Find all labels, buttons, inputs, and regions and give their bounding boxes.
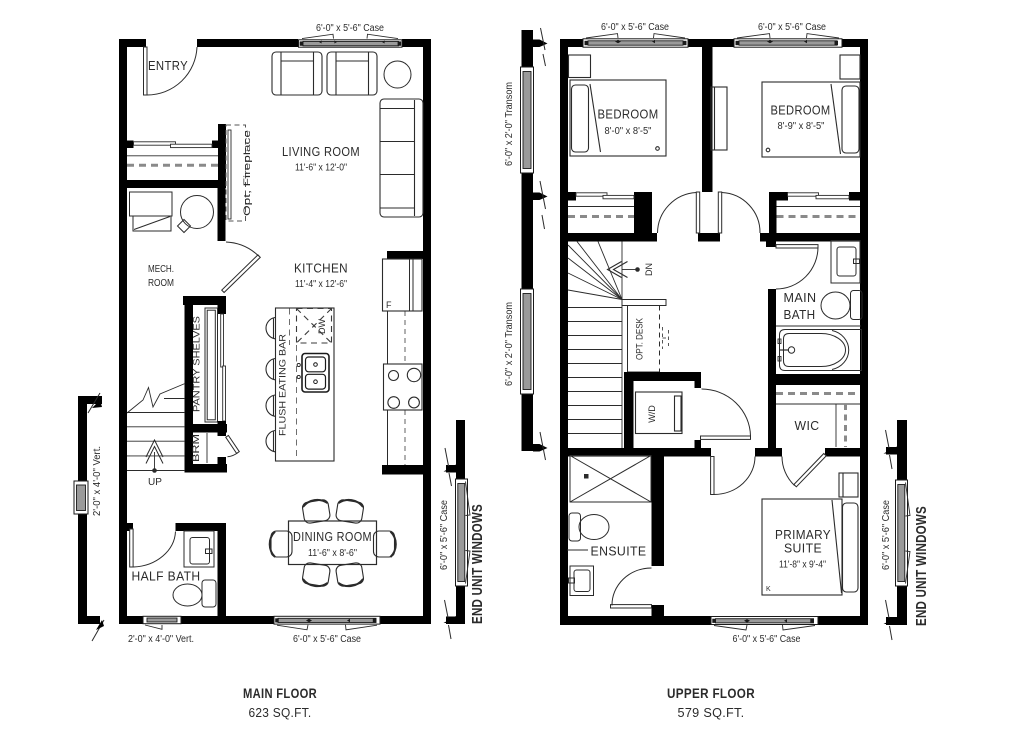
svg-text:6'-0" x 2'-0" Transom: 6'-0" x 2'-0" Transom bbox=[504, 302, 515, 386]
svg-text:ENTRY: ENTRY bbox=[148, 59, 188, 73]
svg-text:END UNIT WINDOWS: END UNIT WINDOWS bbox=[913, 506, 930, 626]
svg-text:8'-9" x 8'-5": 8'-9" x 8'-5" bbox=[778, 121, 825, 132]
svg-text:6'-0" x 5'-6" Case: 6'-0" x 5'-6" Case bbox=[758, 22, 826, 33]
svg-text:BEDROOM: BEDROOM bbox=[598, 108, 659, 122]
svg-text:END UNIT WINDOWS: END UNIT WINDOWS bbox=[469, 504, 486, 624]
svg-text:LIVING ROOM: LIVING ROOM bbox=[282, 145, 360, 159]
svg-text:K: K bbox=[766, 586, 771, 593]
svg-text:DINING ROOM: DINING ROOM bbox=[293, 530, 372, 544]
svg-text:6'-0" x 5'-6" Case: 6'-0" x 5'-6" Case bbox=[316, 23, 384, 34]
svg-text:F: F bbox=[386, 300, 392, 310]
svg-text:DW: DW bbox=[317, 319, 327, 334]
svg-text:623 SQ.FT.: 623 SQ.FT. bbox=[249, 705, 312, 720]
svg-text:MAIN: MAIN bbox=[784, 291, 817, 305]
svg-text:WIC: WIC bbox=[795, 419, 820, 433]
svg-text:SUITE: SUITE bbox=[784, 542, 822, 556]
svg-text:6'-0" x 5'-6" Case: 6'-0" x 5'-6" Case bbox=[881, 500, 892, 570]
svg-text:11'-4" x 12'-6": 11'-4" x 12'-6" bbox=[295, 279, 347, 290]
svg-text:BATH: BATH bbox=[784, 308, 816, 322]
svg-text:UP: UP bbox=[148, 477, 162, 488]
svg-text:ROOM: ROOM bbox=[148, 278, 174, 289]
svg-text:2'-0" x 4'-0" Vert.: 2'-0" x 4'-0" Vert. bbox=[92, 446, 103, 516]
svg-text:6'-0" x 5'-6" Case: 6'-0" x 5'-6" Case bbox=[601, 22, 669, 33]
svg-text:BEDROOM: BEDROOM bbox=[771, 104, 831, 118]
svg-text:6'-0" x 2'-0" Transom: 6'-0" x 2'-0" Transom bbox=[504, 82, 515, 166]
svg-text:2'-0" x 4'-0" Vert.: 2'-0" x 4'-0" Vert. bbox=[128, 634, 194, 645]
svg-text:FLUSH EATING BAR: FLUSH EATING BAR bbox=[278, 333, 288, 436]
svg-text:MECH.: MECH. bbox=[148, 264, 174, 275]
svg-text:6'-0" x 5'-6" Case: 6'-0" x 5'-6" Case bbox=[293, 634, 361, 645]
svg-text:6'-0" x 5'-6" Case: 6'-0" x 5'-6" Case bbox=[439, 500, 450, 570]
svg-text:579 SQ.FT.: 579 SQ.FT. bbox=[678, 705, 745, 720]
svg-text:Opt, Fireplace: Opt, Fireplace bbox=[242, 130, 252, 216]
svg-text:11'-6" x 8'-6": 11'-6" x 8'-6" bbox=[308, 548, 357, 559]
svg-text:KITCHEN: KITCHEN bbox=[294, 262, 348, 276]
svg-text:BRM: BRM bbox=[191, 434, 201, 462]
svg-text:HALF BATH: HALF BATH bbox=[132, 570, 201, 584]
svg-text:OPT. DESK: OPT. DESK bbox=[635, 318, 645, 360]
svg-text:PRIMARY: PRIMARY bbox=[775, 528, 831, 542]
svg-text:ENSUITE: ENSUITE bbox=[591, 545, 647, 559]
svg-text:11'-8" x 9'-4": 11'-8" x 9'-4" bbox=[779, 560, 826, 571]
svg-text:DN: DN bbox=[644, 263, 654, 276]
svg-text:6'-0" x 5'-6" Case: 6'-0" x 5'-6" Case bbox=[733, 634, 801, 645]
svg-text:W/D: W/D bbox=[647, 405, 657, 423]
svg-text:PANTRY SHELVES: PANTRY SHELVES bbox=[192, 316, 202, 412]
svg-text:8'-0" x 8'-5": 8'-0" x 8'-5" bbox=[605, 126, 652, 137]
svg-text:UPPER FLOOR: UPPER FLOOR bbox=[667, 685, 755, 701]
svg-text:MAIN FLOOR: MAIN FLOOR bbox=[243, 685, 317, 701]
svg-text:11'-6" x 12'-0": 11'-6" x 12'-0" bbox=[295, 163, 347, 174]
